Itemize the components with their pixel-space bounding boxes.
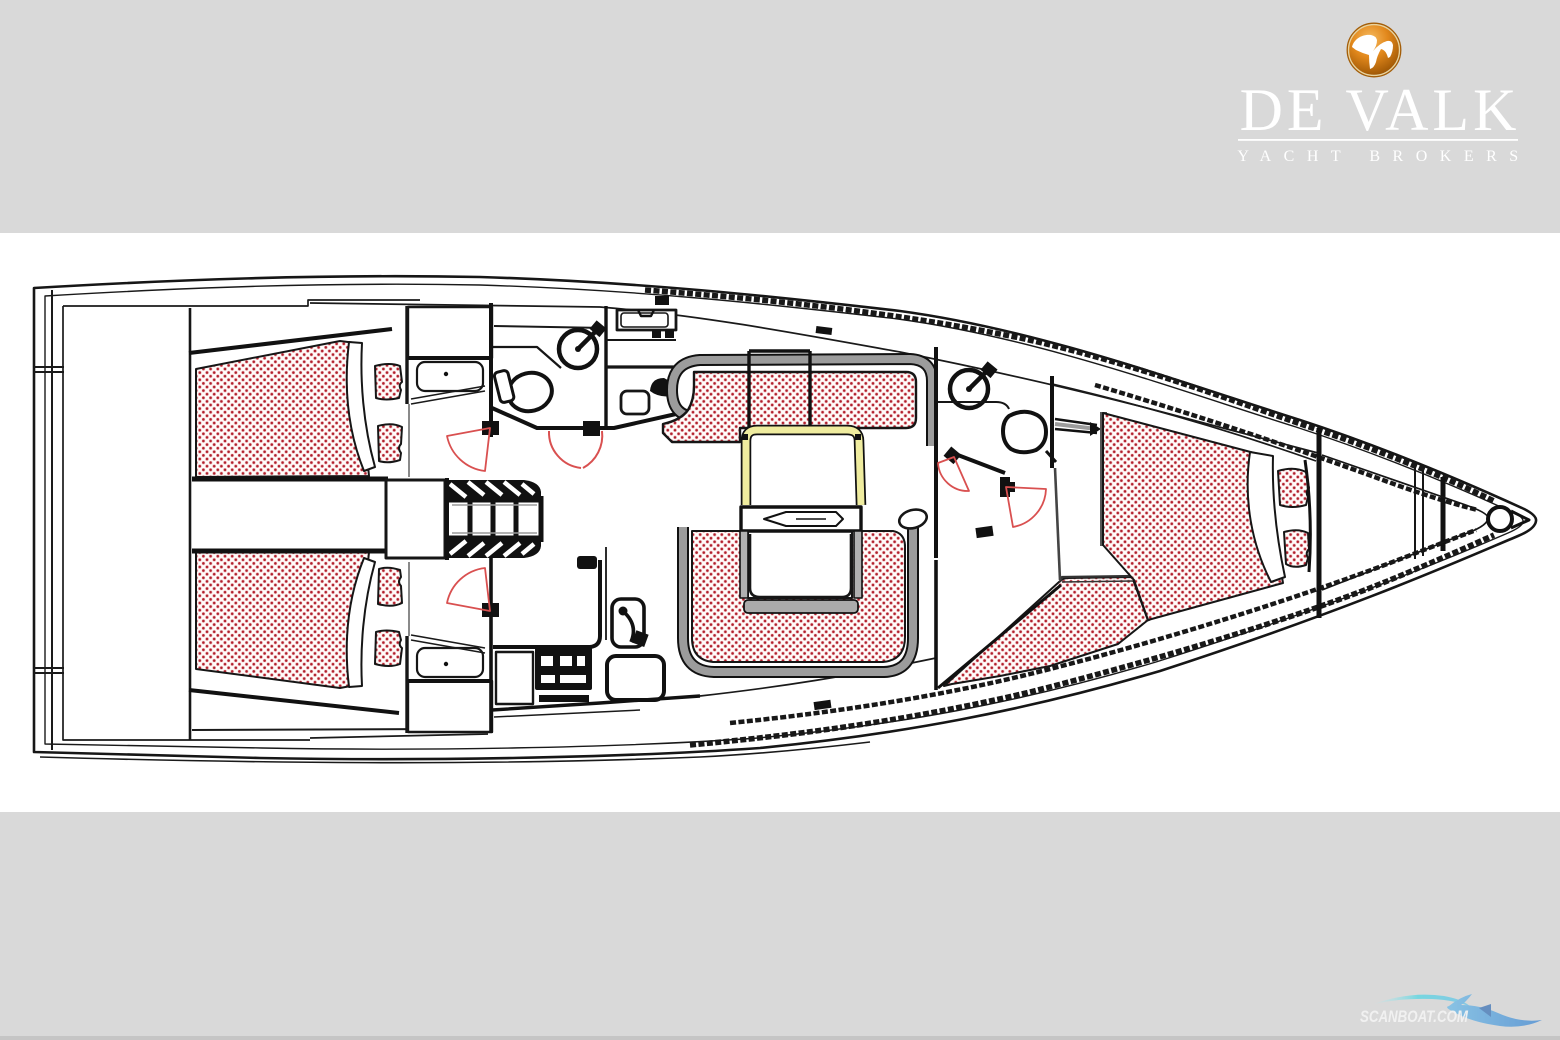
svg-text:SCANBOAT.COM: SCANBOAT.COM (1360, 1007, 1469, 1026)
svg-text:YACHT BROKERS: YACHT BROKERS (1237, 148, 1530, 165)
svg-text:DE VALK: DE VALK (1240, 77, 1521, 143)
